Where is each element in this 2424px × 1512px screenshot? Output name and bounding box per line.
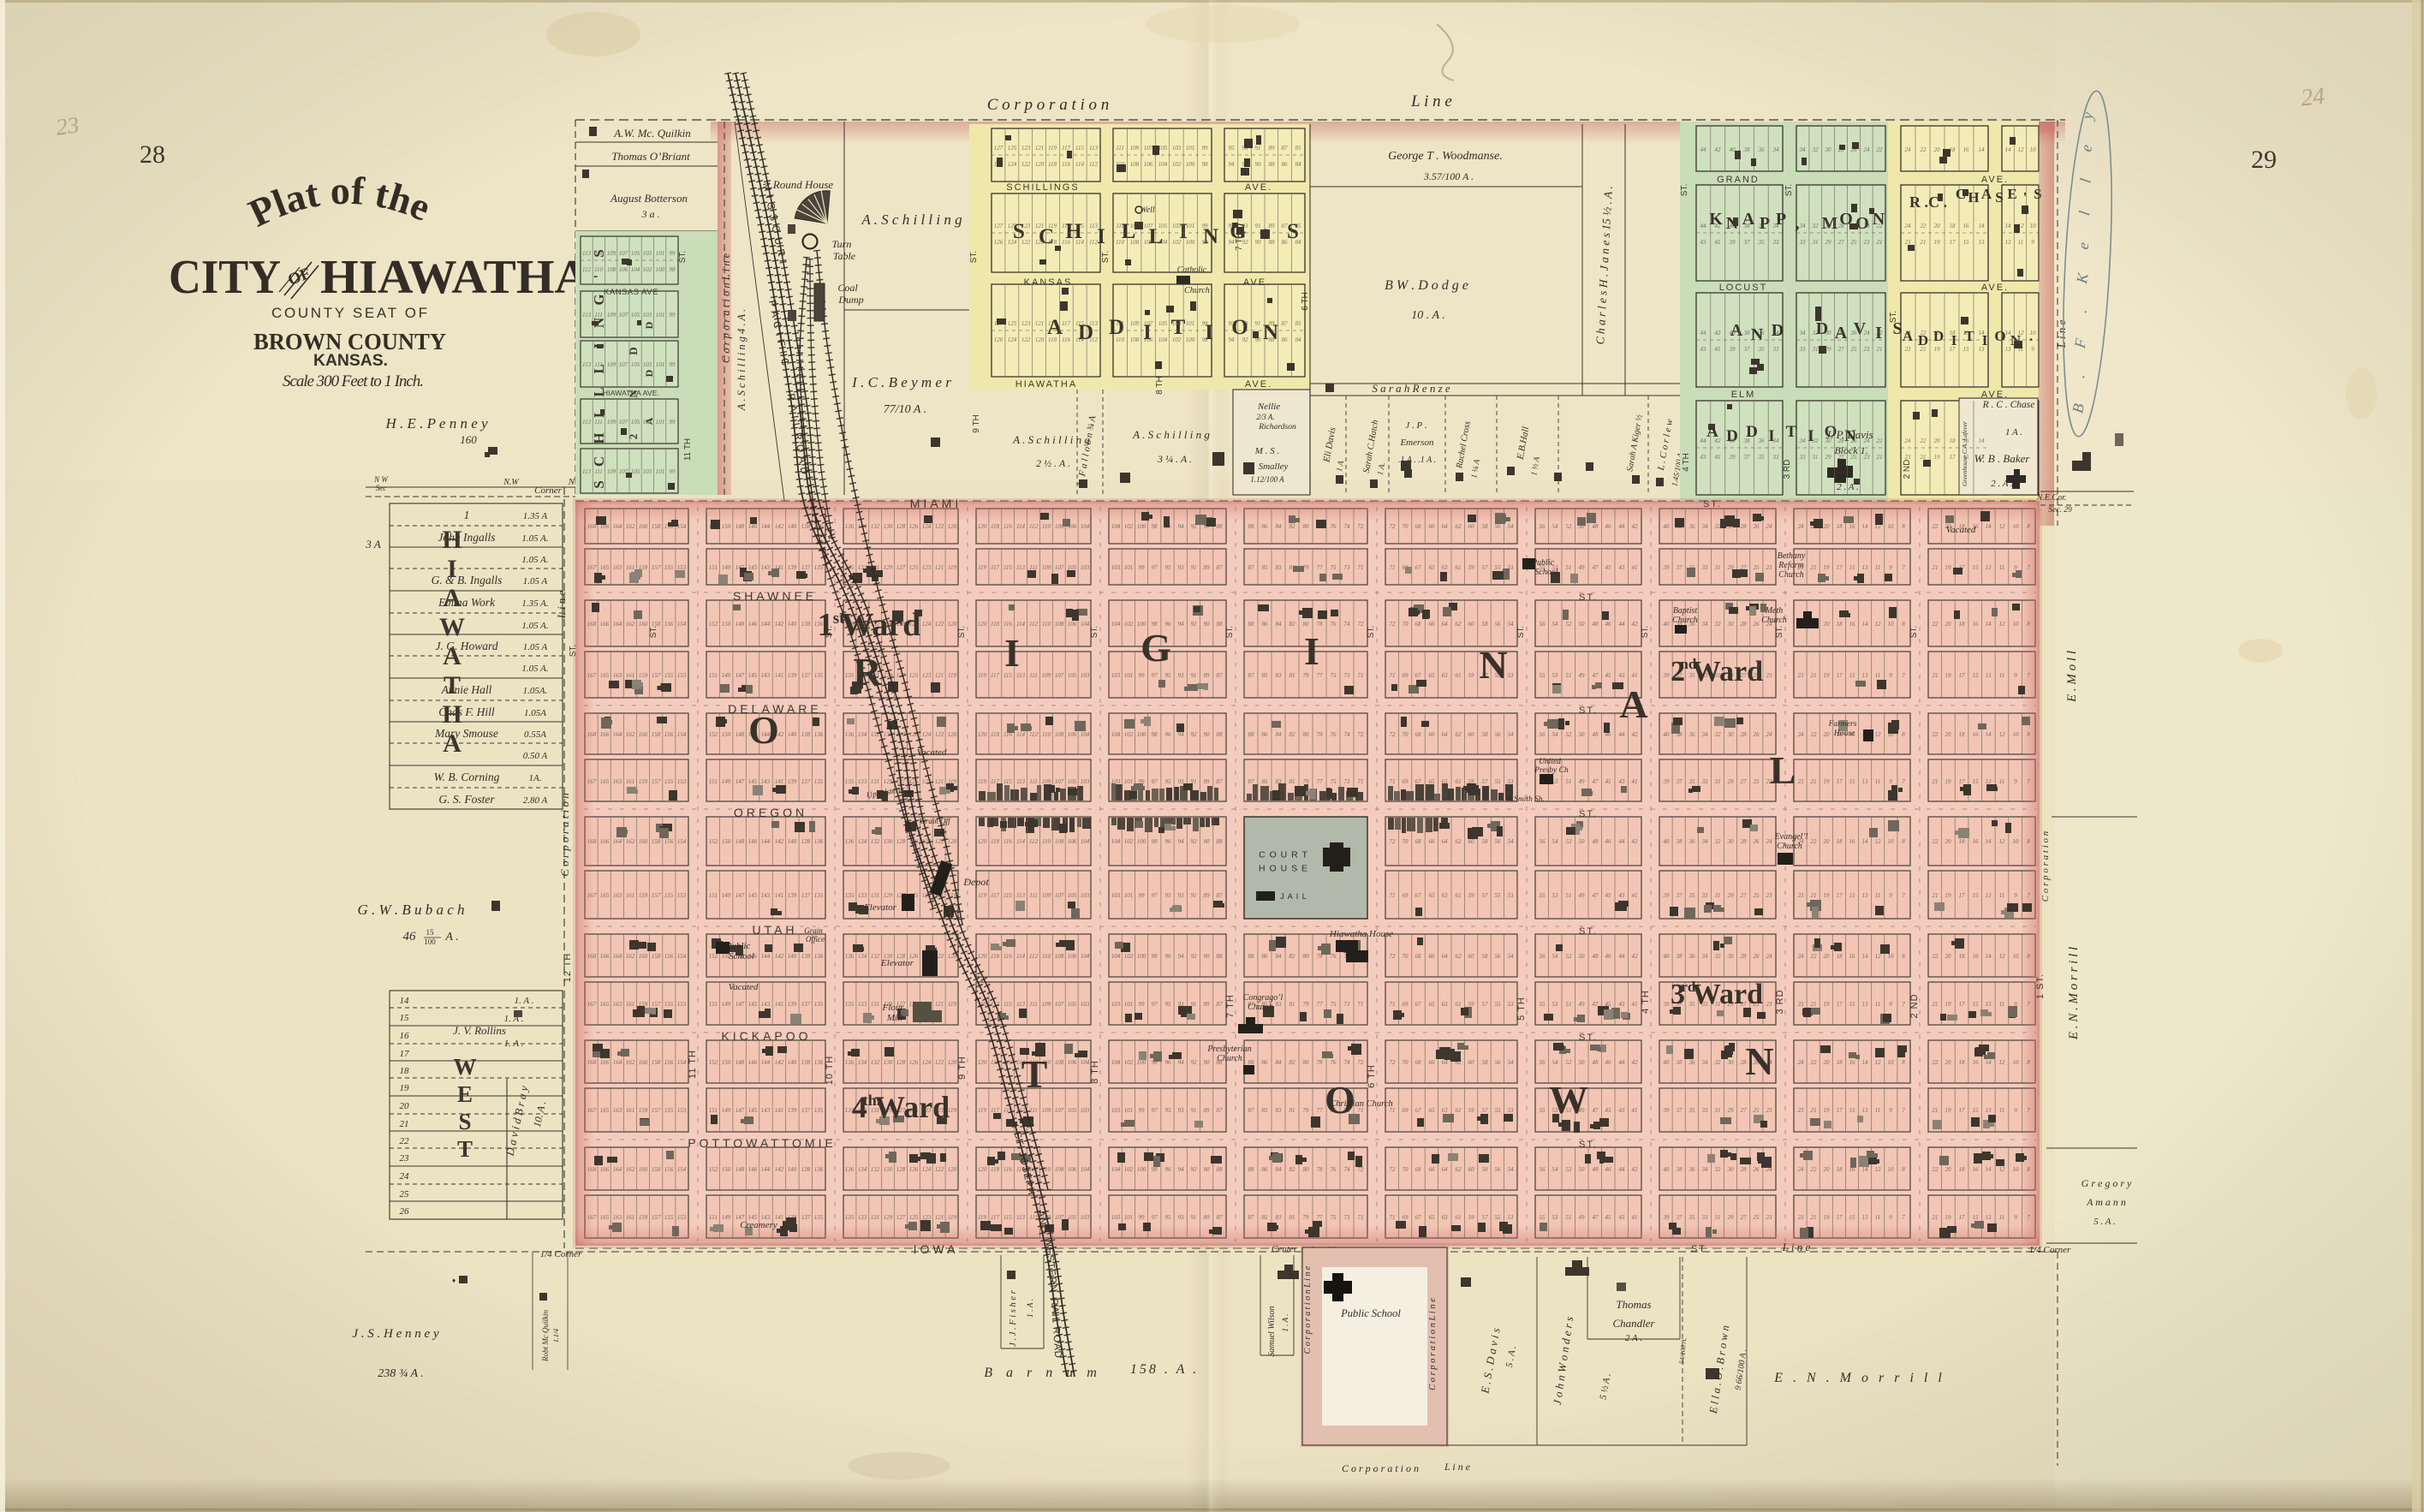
svg-text:34: 34 xyxy=(1799,438,1807,444)
svg-text:D: D xyxy=(643,321,655,329)
svg-text:163: 163 xyxy=(613,564,622,571)
svg-text:31: 31 xyxy=(1714,1214,1721,1221)
svg-text:92: 92 xyxy=(1191,1059,1198,1066)
svg-text:78: 78 xyxy=(1317,1166,1324,1173)
svg-text:152: 152 xyxy=(709,953,718,960)
svg-text:A . S c h i l l i n g 4 . A: A . S c h i l l i n g 4 . A . xyxy=(736,309,747,411)
svg-text:47: 47 xyxy=(1593,1107,1599,1114)
svg-text:148: 148 xyxy=(736,731,745,738)
svg-text:68: 68 xyxy=(1415,838,1422,845)
svg-text:54: 54 xyxy=(1552,523,1559,530)
svg-text:158: 158 xyxy=(652,1166,661,1173)
svg-text:66: 66 xyxy=(1429,953,1436,960)
svg-text:134: 134 xyxy=(858,1059,867,1066)
svg-text:113: 113 xyxy=(1016,1214,1025,1221)
svg-text:37: 37 xyxy=(1676,1107,1683,1114)
svg-text:30: 30 xyxy=(1727,1166,1735,1173)
svg-text:121: 121 xyxy=(1035,320,1045,327)
svg-text:113: 113 xyxy=(582,419,591,426)
svg-text:1.05 A: 1.05 A xyxy=(523,576,548,586)
svg-text:Bethany: Bethany xyxy=(1778,551,1806,561)
svg-text:32: 32 xyxy=(1714,1059,1722,1066)
svg-text:18: 18 xyxy=(1959,838,1966,845)
svg-text:4 TH: 4 TH xyxy=(1682,453,1691,472)
svg-text:53: 53 xyxy=(1508,672,1515,679)
svg-text:OREGON: OREGON xyxy=(734,806,807,819)
svg-text:125: 125 xyxy=(1008,223,1017,229)
svg-text:54: 54 xyxy=(1552,1059,1559,1066)
svg-text:22: 22 xyxy=(1921,146,1927,153)
svg-text:60: 60 xyxy=(1468,838,1475,845)
svg-text:153: 153 xyxy=(677,778,687,785)
svg-text:106: 106 xyxy=(1068,731,1077,738)
svg-text:90: 90 xyxy=(1204,621,1211,628)
svg-text:40: 40 xyxy=(1664,1166,1671,1173)
svg-text:110: 110 xyxy=(1042,953,1051,960)
svg-text:102: 102 xyxy=(1124,953,1134,960)
svg-text:104: 104 xyxy=(1111,838,1121,845)
svg-text:93: 93 xyxy=(1178,1214,1185,1221)
svg-text:97: 97 xyxy=(1152,564,1158,571)
svg-text:85: 85 xyxy=(1262,672,1269,679)
svg-text:164: 164 xyxy=(613,1166,622,1173)
svg-text:88: 88 xyxy=(1217,1166,1224,1173)
svg-text:115: 115 xyxy=(1075,145,1084,152)
svg-text:35: 35 xyxy=(1688,1107,1696,1114)
svg-text:120: 120 xyxy=(1035,161,1045,168)
svg-text:119: 119 xyxy=(978,672,986,679)
svg-text:103: 103 xyxy=(1172,223,1182,229)
svg-text:32: 32 xyxy=(1714,1166,1722,1173)
svg-text:Sec: Sec xyxy=(376,484,387,492)
svg-text:91: 91 xyxy=(1255,145,1261,152)
svg-text:118: 118 xyxy=(991,953,999,960)
svg-text:16: 16 xyxy=(1849,953,1856,960)
svg-text:86: 86 xyxy=(1262,523,1269,530)
svg-text:24: 24 xyxy=(1798,953,1805,960)
svg-text:66: 66 xyxy=(1429,621,1436,628)
svg-text:117: 117 xyxy=(991,1214,999,1221)
svg-text:56: 56 xyxy=(1495,731,1502,738)
svg-text:86: 86 xyxy=(1262,731,1269,738)
svg-text:24: 24 xyxy=(1798,1059,1805,1066)
svg-text:108: 108 xyxy=(1130,161,1140,168)
svg-text:103: 103 xyxy=(1111,564,1121,571)
svg-text:7: 7 xyxy=(1902,1107,1905,1114)
svg-text:137: 137 xyxy=(801,1107,811,1114)
svg-text:60: 60 xyxy=(1468,621,1475,628)
svg-text:101: 101 xyxy=(1186,223,1195,229)
svg-text:167: 167 xyxy=(587,1214,597,1221)
svg-text:91: 91 xyxy=(1191,1214,1197,1221)
svg-text:st.: st. xyxy=(833,610,849,628)
svg-text:18: 18 xyxy=(1959,731,1966,738)
svg-text:G . W . B u b a c h: G . W . B u b a c h xyxy=(357,902,464,918)
svg-text:119: 119 xyxy=(948,1001,956,1008)
svg-text:Reform: Reform xyxy=(1778,561,1803,570)
svg-text:87: 87 xyxy=(1248,564,1255,571)
svg-text:51: 51 xyxy=(1566,1214,1572,1221)
svg-text:153: 153 xyxy=(677,672,687,679)
svg-text:39: 39 xyxy=(1663,672,1671,679)
svg-text:157: 157 xyxy=(652,1001,661,1008)
svg-text:90: 90 xyxy=(1204,953,1211,960)
svg-text:120: 120 xyxy=(978,523,987,530)
svg-text:117: 117 xyxy=(1062,320,1070,327)
svg-text:136: 136 xyxy=(845,953,855,960)
svg-text:133: 133 xyxy=(858,1214,867,1221)
svg-text:25: 25 xyxy=(1754,892,1760,899)
svg-text:158: 158 xyxy=(652,731,661,738)
svg-text:81: 81 xyxy=(1289,1001,1295,1008)
svg-text:93: 93 xyxy=(1178,564,1185,571)
svg-text:166: 166 xyxy=(600,731,610,738)
svg-text:101: 101 xyxy=(1124,1001,1134,1008)
svg-text:24: 24 xyxy=(1766,953,1773,960)
svg-text:87: 87 xyxy=(1282,223,1289,229)
svg-text:22: 22 xyxy=(1877,330,1884,336)
svg-text:1A.: 1A. xyxy=(529,773,542,783)
svg-text:12: 12 xyxy=(1999,1059,2006,1066)
svg-text:44: 44 xyxy=(1700,438,1707,444)
svg-text:42: 42 xyxy=(1632,621,1639,628)
svg-text:121: 121 xyxy=(935,564,944,571)
svg-text:93: 93 xyxy=(1178,672,1185,679)
svg-text:64: 64 xyxy=(1442,1059,1449,1066)
svg-text:1.35 A.: 1.35 A. xyxy=(521,598,548,609)
svg-text:136: 136 xyxy=(845,838,855,845)
svg-text:100: 100 xyxy=(1137,731,1146,738)
svg-text:39: 39 xyxy=(1663,1001,1671,1008)
svg-text:28: 28 xyxy=(1741,838,1748,845)
svg-text:21: 21 xyxy=(1811,1107,1817,1114)
svg-text:Elevator: Elevator xyxy=(863,902,897,913)
svg-text:21: 21 xyxy=(1877,239,1883,246)
svg-text:92: 92 xyxy=(1191,621,1198,628)
svg-text:3 a .: 3 a . xyxy=(641,208,660,220)
svg-text:120: 120 xyxy=(1035,336,1045,343)
svg-text:89: 89 xyxy=(1269,320,1276,327)
svg-text:130: 130 xyxy=(884,523,893,530)
svg-text:77/10 A .: 77/10 A . xyxy=(884,403,926,416)
svg-text:16: 16 xyxy=(1973,838,1980,845)
svg-text:15: 15 xyxy=(1973,1214,1980,1221)
svg-text:60: 60 xyxy=(1468,731,1475,738)
svg-text:53: 53 xyxy=(1552,892,1559,899)
svg-text:73: 73 xyxy=(1344,778,1351,785)
svg-text:168: 168 xyxy=(587,731,597,738)
svg-text:E: E xyxy=(457,1081,473,1107)
svg-text:40: 40 xyxy=(1730,146,1736,153)
svg-text:7: 7 xyxy=(2027,1001,2030,1008)
svg-text:Smalley: Smalley xyxy=(1259,461,1289,472)
svg-text:O: O xyxy=(748,708,779,752)
svg-text:109: 109 xyxy=(1042,778,1051,785)
svg-text:R: R xyxy=(853,650,882,693)
svg-text:163: 163 xyxy=(613,1107,622,1114)
svg-text:104: 104 xyxy=(1158,239,1168,246)
svg-text:162: 162 xyxy=(626,621,635,628)
svg-text:Nellie: Nellie xyxy=(1257,402,1280,412)
svg-text:118: 118 xyxy=(1048,336,1057,343)
svg-text:94: 94 xyxy=(1178,731,1185,738)
svg-text:79: 79 xyxy=(1303,1214,1310,1221)
svg-text:119: 119 xyxy=(978,1214,986,1221)
svg-text:155: 155 xyxy=(664,672,674,679)
svg-text:42: 42 xyxy=(1632,1166,1639,1173)
svg-text:8: 8 xyxy=(1902,1059,1905,1066)
svg-text:15: 15 xyxy=(1849,672,1856,679)
svg-text:92: 92 xyxy=(1242,336,1249,343)
svg-text:101: 101 xyxy=(1124,778,1134,785)
svg-text:72: 72 xyxy=(1358,621,1365,628)
svg-text:27: 27 xyxy=(1741,892,1748,899)
svg-text:37: 37 xyxy=(1743,346,1751,353)
svg-text:48: 48 xyxy=(1593,1059,1599,1066)
svg-text:163: 163 xyxy=(613,672,622,679)
svg-text:35: 35 xyxy=(1758,346,1766,353)
svg-text:22: 22 xyxy=(1921,223,1927,229)
svg-text:16: 16 xyxy=(1849,1059,1856,1066)
svg-text:32: 32 xyxy=(1714,523,1722,530)
svg-text:122: 122 xyxy=(935,731,944,738)
svg-text:64: 64 xyxy=(1442,838,1449,845)
svg-text:140: 140 xyxy=(788,1059,797,1066)
svg-text:63: 63 xyxy=(1442,892,1449,899)
svg-text:160: 160 xyxy=(639,838,648,845)
svg-text:N: N xyxy=(1745,1039,1773,1083)
svg-text:109: 109 xyxy=(607,419,616,426)
svg-text:Table: Table xyxy=(833,250,856,262)
svg-text:56: 56 xyxy=(1540,1166,1546,1173)
svg-text:21: 21 xyxy=(1811,778,1817,785)
svg-text:Scale 300 Feet to 1 Inch.: Scale 300 Feet to 1 Inch. xyxy=(283,372,424,390)
svg-text:60: 60 xyxy=(1468,523,1475,530)
svg-text:21: 21 xyxy=(1933,564,1939,571)
svg-text:26: 26 xyxy=(1754,731,1760,738)
svg-text:16: 16 xyxy=(1849,838,1856,845)
svg-text:106: 106 xyxy=(1068,1166,1077,1173)
svg-text:25: 25 xyxy=(1851,454,1858,461)
svg-text:32: 32 xyxy=(1812,330,1819,336)
svg-text:99: 99 xyxy=(1139,892,1146,899)
svg-text:96: 96 xyxy=(1165,731,1172,738)
svg-text:99: 99 xyxy=(670,419,676,426)
svg-text:99: 99 xyxy=(1139,1107,1146,1114)
svg-text:20: 20 xyxy=(1945,1059,1952,1066)
svg-text:135: 135 xyxy=(814,672,824,679)
svg-text:AVE.: AVE. xyxy=(1981,175,2009,185)
svg-text:128: 128 xyxy=(896,1166,906,1173)
svg-text:130: 130 xyxy=(884,1166,893,1173)
svg-text:36: 36 xyxy=(1688,1059,1696,1066)
svg-text:9: 9 xyxy=(1889,1001,1892,1008)
svg-text:61: 61 xyxy=(1456,672,1462,679)
svg-text:108: 108 xyxy=(1055,953,1064,960)
svg-text:110: 110 xyxy=(1042,621,1051,628)
svg-text:12: 12 xyxy=(1875,1059,1882,1066)
svg-text:113: 113 xyxy=(1016,778,1025,785)
svg-text:13: 13 xyxy=(1979,346,1986,353)
svg-text:98: 98 xyxy=(1152,1166,1158,1173)
svg-text:39: 39 xyxy=(1663,778,1671,785)
svg-text:15: 15 xyxy=(1849,1107,1856,1114)
svg-text:48: 48 xyxy=(1593,838,1599,845)
svg-text:16: 16 xyxy=(1849,621,1856,628)
svg-text:16: 16 xyxy=(1963,330,1970,336)
svg-text:20: 20 xyxy=(400,1101,410,1111)
svg-text:123: 123 xyxy=(1021,223,1031,229)
svg-text:30: 30 xyxy=(1727,731,1735,738)
svg-text:116: 116 xyxy=(1004,621,1012,628)
svg-text:75: 75 xyxy=(1331,1214,1337,1221)
svg-text:121: 121 xyxy=(935,1214,944,1221)
svg-text:65: 65 xyxy=(1429,564,1436,571)
svg-text:150: 150 xyxy=(722,1059,731,1066)
svg-text:C o r p o r a t i o n: C o r p o r a t i o n xyxy=(987,96,1110,114)
svg-text:HIAWATHA: HIAWATHA xyxy=(1015,379,1077,390)
svg-text:94: 94 xyxy=(1178,523,1185,530)
svg-text:54: 54 xyxy=(1552,731,1559,738)
svg-text:10: 10 xyxy=(2030,223,2037,229)
svg-text:ST.: ST. xyxy=(1579,705,1598,716)
svg-text:34: 34 xyxy=(1701,731,1709,738)
svg-text:120: 120 xyxy=(948,1166,957,1173)
svg-text:4 TH: 4 TH xyxy=(1641,990,1651,1014)
svg-text:41: 41 xyxy=(1715,239,1721,246)
svg-text:94: 94 xyxy=(1178,953,1185,960)
svg-text:36: 36 xyxy=(1688,838,1696,845)
svg-text:150: 150 xyxy=(722,1166,731,1173)
svg-text:31: 31 xyxy=(1714,892,1721,899)
svg-text:154: 154 xyxy=(677,838,687,845)
svg-text:88: 88 xyxy=(1217,838,1224,845)
svg-text:113: 113 xyxy=(582,250,591,257)
svg-text:94: 94 xyxy=(1178,1166,1185,1173)
svg-text:18: 18 xyxy=(1837,838,1843,845)
svg-text:70: 70 xyxy=(1403,621,1409,628)
svg-text:ST.: ST. xyxy=(1579,592,1598,603)
svg-text:Grain Off: Grain Off xyxy=(920,817,951,825)
svg-text:1. A .: 1. A . xyxy=(504,1039,524,1049)
svg-text:157: 157 xyxy=(652,672,661,679)
svg-text:135: 135 xyxy=(814,892,824,899)
svg-text:149: 149 xyxy=(722,672,731,679)
svg-text:103: 103 xyxy=(643,468,652,475)
svg-text:161: 161 xyxy=(626,1214,635,1221)
svg-text:149: 149 xyxy=(722,778,731,785)
svg-text:151: 151 xyxy=(709,564,718,571)
svg-text:132: 132 xyxy=(871,523,880,530)
svg-text:7: 7 xyxy=(1902,1214,1905,1221)
svg-text:84: 84 xyxy=(1276,731,1283,738)
svg-text:15: 15 xyxy=(1963,239,1970,246)
svg-text:MIAMI: MIAMI xyxy=(910,497,962,510)
svg-text:162: 162 xyxy=(626,838,635,845)
svg-text:19: 19 xyxy=(1824,778,1831,785)
svg-text:11: 11 xyxy=(1999,892,2004,899)
svg-text:42: 42 xyxy=(1632,523,1639,530)
svg-text:86: 86 xyxy=(1282,161,1289,168)
svg-text:45: 45 xyxy=(1605,1107,1612,1114)
svg-text:78: 78 xyxy=(1317,731,1324,738)
svg-text:120: 120 xyxy=(978,953,987,960)
svg-text:ST: ST xyxy=(1691,1244,1706,1254)
svg-text:166: 166 xyxy=(600,621,610,628)
svg-text:119: 119 xyxy=(1048,145,1057,152)
svg-text:42: 42 xyxy=(1632,731,1639,738)
svg-text:51: 51 xyxy=(1566,1001,1572,1008)
svg-text:ST.: ST. xyxy=(1579,809,1598,819)
svg-text:156: 156 xyxy=(664,1166,674,1173)
svg-text:89: 89 xyxy=(1269,223,1276,229)
svg-text:28: 28 xyxy=(1741,621,1748,628)
svg-text:108: 108 xyxy=(1055,1166,1064,1173)
svg-text:ST.: ST. xyxy=(969,251,979,263)
svg-text:102: 102 xyxy=(1172,239,1182,246)
svg-text:108: 108 xyxy=(1055,731,1064,738)
svg-text:147: 147 xyxy=(736,1107,745,1114)
svg-text:40: 40 xyxy=(1730,438,1736,444)
svg-text:22: 22 xyxy=(1933,731,1939,738)
svg-text:22: 22 xyxy=(1933,1166,1939,1173)
svg-text:11: 11 xyxy=(2018,239,2023,246)
svg-text:113: 113 xyxy=(1016,564,1025,571)
svg-text:117: 117 xyxy=(1062,145,1070,152)
svg-text:3 RD: 3 RD xyxy=(1775,989,1785,1014)
svg-text:118: 118 xyxy=(991,731,999,738)
svg-text:34: 34 xyxy=(1701,838,1709,845)
svg-text:129: 129 xyxy=(884,892,893,899)
svg-text:22: 22 xyxy=(1933,953,1939,960)
svg-text:I: I xyxy=(1097,225,1105,248)
svg-text:85: 85 xyxy=(1295,320,1302,327)
svg-text:64: 64 xyxy=(1442,523,1449,530)
svg-text:22: 22 xyxy=(1877,223,1884,229)
svg-text:138: 138 xyxy=(801,621,811,628)
svg-text:41: 41 xyxy=(1715,346,1721,353)
svg-text:23: 23 xyxy=(1905,346,1912,353)
svg-text:23: 23 xyxy=(1798,1214,1805,1221)
svg-text:CITY: CITY xyxy=(169,251,281,304)
svg-text:84: 84 xyxy=(1276,953,1283,960)
svg-text:161: 161 xyxy=(626,1001,635,1008)
svg-text:76: 76 xyxy=(1331,953,1337,960)
svg-text:44: 44 xyxy=(1619,953,1626,960)
svg-text:124: 124 xyxy=(1008,239,1017,246)
svg-text:10: 10 xyxy=(2013,621,2020,628)
svg-text:152: 152 xyxy=(709,731,718,738)
svg-text:119: 119 xyxy=(948,1214,956,1221)
svg-text:144: 144 xyxy=(761,953,771,960)
svg-text:23: 23 xyxy=(1864,239,1871,246)
svg-text:17: 17 xyxy=(1950,454,1956,461)
svg-text:20: 20 xyxy=(1824,953,1831,960)
svg-text:89: 89 xyxy=(1204,564,1211,571)
svg-text:75: 75 xyxy=(1331,672,1337,679)
svg-text:21: 21 xyxy=(1921,346,1927,353)
svg-text:116: 116 xyxy=(1004,523,1012,530)
svg-text:87: 87 xyxy=(1217,672,1224,679)
svg-text:103: 103 xyxy=(1111,672,1121,679)
svg-text:102: 102 xyxy=(1124,621,1134,628)
svg-text:101: 101 xyxy=(1124,564,1134,571)
svg-text:67: 67 xyxy=(1415,892,1422,899)
svg-text:Dump: Dump xyxy=(837,294,863,306)
svg-text:R . C . Chase: R . C . Chase xyxy=(1982,400,2035,410)
svg-text:125: 125 xyxy=(1008,145,1017,152)
svg-text:23: 23 xyxy=(1798,1107,1805,1114)
